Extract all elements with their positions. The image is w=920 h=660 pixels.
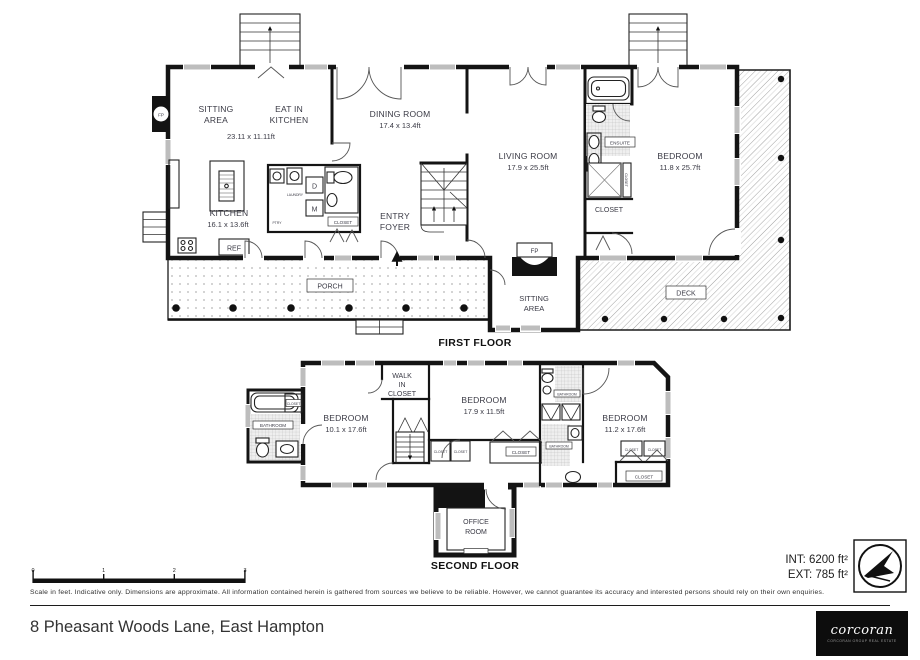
fridge-label: REF bbox=[227, 246, 241, 253]
bathroom-left-label: BATHROOM bbox=[260, 423, 286, 428]
closet-micro-label: CLOSET bbox=[624, 173, 628, 187]
label-sitting2-2: AREA bbox=[524, 304, 544, 313]
scale-tick-1: 1 bbox=[102, 568, 105, 574]
fireplace-sitting-label: FP bbox=[531, 249, 539, 255]
corcoran-logo: corcoran corcoran group real estate bbox=[816, 611, 908, 656]
logo-name: corcoran bbox=[831, 624, 894, 637]
cooktop-icon bbox=[178, 238, 196, 253]
toilet-icon bbox=[593, 106, 606, 123]
scale-tick-2: 2 bbox=[173, 568, 176, 574]
office-label-2: ROOM bbox=[465, 529, 487, 536]
bathtub-icon bbox=[588, 77, 629, 100]
closet-hall1-label: CLOSET bbox=[434, 450, 448, 454]
label-living-room: LIVING ROOM bbox=[499, 151, 558, 161]
shower-icon bbox=[588, 163, 621, 197]
fireplace-sitting: FP bbox=[512, 243, 557, 276]
label-sitting-area-1: SITTING bbox=[199, 104, 234, 114]
label-bedroom1-dims: 10.1 x 17.6ft bbox=[325, 425, 367, 434]
closet-bedroom-label: CLOSET bbox=[595, 207, 624, 214]
sink-icon bbox=[327, 194, 337, 207]
first-floor-plan: FP bbox=[143, 14, 790, 349]
fireplace-left: FP bbox=[152, 96, 169, 132]
fridge: REF bbox=[219, 239, 249, 255]
porch-steps bbox=[356, 320, 403, 334]
label-wic-1: WALK bbox=[392, 373, 412, 380]
footer-divider bbox=[30, 605, 890, 606]
label-eat-in-2: KITCHEN bbox=[270, 115, 309, 125]
office-room: OFFICE ROOM bbox=[434, 483, 515, 556]
label-sitting2-1: SITTING bbox=[519, 294, 549, 303]
toilet-icon bbox=[566, 472, 581, 483]
label-bedroom-f1-dims: 11.8 x 25.7ft bbox=[660, 163, 702, 172]
kitchen-island bbox=[210, 161, 244, 211]
exterior-stairs-right bbox=[629, 14, 687, 67]
label-wic-2: IN bbox=[399, 382, 406, 389]
fireplace-left-label: FP bbox=[158, 113, 164, 118]
closet-bed2-label: CLOSET bbox=[512, 450, 531, 455]
dryer-label: D bbox=[312, 184, 317, 191]
closet-bath-label: CLOSET bbox=[287, 402, 301, 406]
toilet-icon bbox=[542, 369, 553, 383]
deck-label: DECK bbox=[666, 286, 706, 299]
label-eat-in-1: EAT IN bbox=[275, 104, 303, 114]
compass-icon bbox=[854, 540, 906, 592]
bathroom-top-label: BATHROOM bbox=[557, 392, 577, 396]
scale-bar: 0 1 2 3 bbox=[31, 568, 246, 583]
label-bedroom3-dims: 11.2 x 17.6ft bbox=[605, 425, 647, 434]
exterior-stairs-left bbox=[240, 14, 300, 67]
second-floor-plan: OFFICE ROOM bbox=[244, 359, 672, 572]
area-summary: INT: 6200 ft² EXT: 785 ft² bbox=[756, 553, 848, 583]
closet-hall2-label: CLOSET bbox=[454, 450, 468, 454]
disclaimer-text: Scale in feet. Indicative only. Dimensio… bbox=[30, 589, 896, 596]
label-kitchen-dims: 16.1 x 13.6ft bbox=[207, 220, 249, 229]
label-bedroom2-dims: 17.9 x 11.5ft bbox=[464, 407, 506, 416]
label-wic-3: CLOSET bbox=[388, 391, 417, 398]
label-kitchen: KITCHEN bbox=[210, 208, 249, 218]
interior-area: INT: 6200 ft² bbox=[756, 553, 848, 568]
sink-icon bbox=[543, 386, 551, 394]
second-floor-title: SECOND FLOOR bbox=[431, 560, 519, 572]
property-address: 8 Pheasant Woods Lane, East Hampton bbox=[30, 618, 324, 637]
closet-bed3b-label: CLOSET bbox=[648, 448, 662, 452]
first-floor-title: FIRST FLOOR bbox=[438, 337, 511, 349]
exterior-steps-left-side bbox=[143, 212, 168, 242]
laundry-label: LAUNDRY bbox=[287, 193, 304, 197]
sink-icon bbox=[568, 426, 582, 440]
label-living-dims: 17.9 x 25.5ft bbox=[507, 163, 549, 172]
closet-bed3-label: CLOSET bbox=[635, 475, 654, 480]
label-bedroom1: BEDROOM bbox=[323, 413, 368, 423]
label-sitting-dims: 23.11 x 11.11ft bbox=[227, 132, 276, 141]
bathroom-bottom-label: BATHROOM bbox=[549, 444, 569, 448]
ensuite-label: ENSUITE bbox=[610, 140, 630, 145]
toilet-icon bbox=[327, 172, 352, 184]
exterior-area: EXT: 785 ft² bbox=[756, 568, 848, 583]
logo-tagline: corcoran group real estate bbox=[827, 639, 896, 643]
label-dining-room: DINING ROOM bbox=[370, 109, 431, 119]
svg-text:PORCH: PORCH bbox=[317, 284, 342, 291]
label-entry-2: FOYER bbox=[380, 222, 410, 232]
porch-label: PORCH bbox=[307, 279, 353, 292]
label-entry-1: ENTRY bbox=[380, 211, 410, 221]
porch-area bbox=[168, 258, 490, 334]
label-bedroom3: BEDROOM bbox=[602, 413, 647, 423]
washer-label: M bbox=[312, 207, 318, 214]
label-bedroom2: BEDROOM bbox=[461, 395, 506, 405]
label-dining-dims: 17.4 x 13.4ft bbox=[379, 121, 421, 130]
second-floor-outline bbox=[303, 363, 668, 485]
label-sitting-area-2: AREA bbox=[204, 115, 228, 125]
closet-hall-label: CLOSET bbox=[334, 220, 353, 225]
floorplan-sheet: FP bbox=[0, 0, 920, 660]
svg-text:DECK: DECK bbox=[676, 291, 696, 298]
pantry-label: PTRY bbox=[273, 221, 283, 225]
label-bedroom-f1: BEDROOM bbox=[657, 151, 702, 161]
office-label-1: OFFICE bbox=[463, 519, 489, 526]
toilet-icon bbox=[256, 438, 269, 457]
sink-icon bbox=[276, 441, 298, 457]
